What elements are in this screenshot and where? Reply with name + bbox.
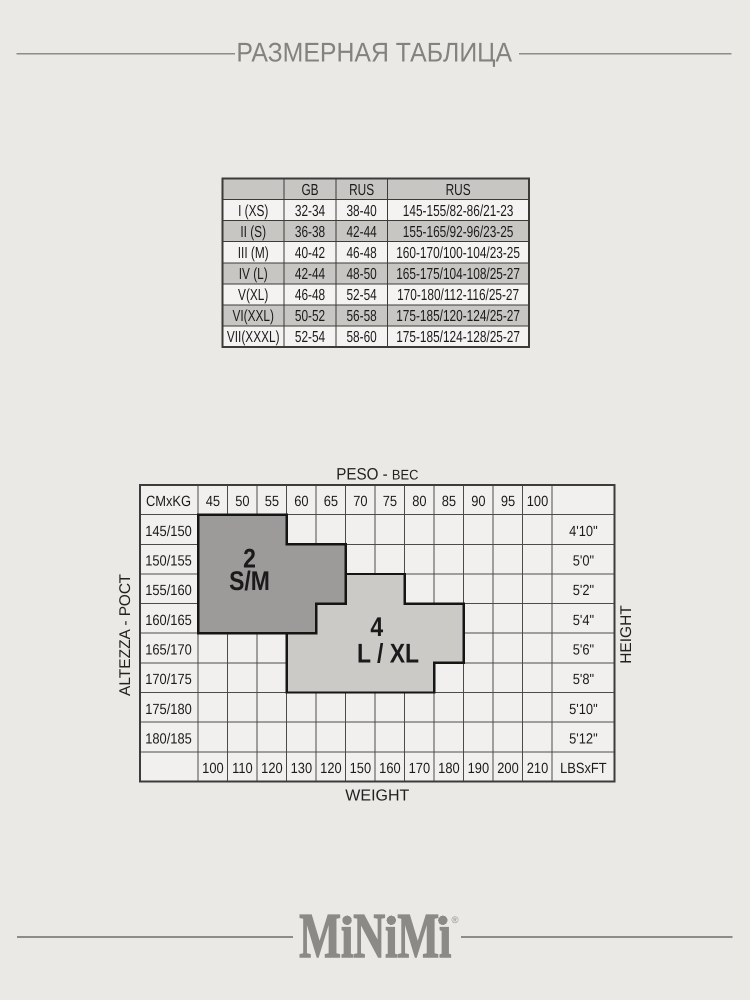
- svg-text:70: 70: [353, 494, 367, 510]
- svg-text:5'4": 5'4": [573, 613, 594, 629]
- svg-text:CMxKG: CMxKG: [146, 494, 191, 510]
- svg-text:120: 120: [320, 761, 341, 777]
- svg-text:RUS: RUS: [446, 182, 471, 199]
- svg-text:LBSxFT: LBSxFT: [560, 761, 607, 777]
- svg-text:VII(XXXL): VII(XXXL): [227, 329, 280, 346]
- svg-text:5'12": 5'12": [569, 731, 598, 747]
- svg-text:L / XL: L / XL: [357, 639, 419, 669]
- svg-text:56-58: 56-58: [346, 308, 376, 325]
- svg-text:170/175: 170/175: [145, 672, 192, 688]
- svg-text:5'8": 5'8": [573, 672, 594, 688]
- svg-text:55: 55: [265, 494, 279, 510]
- svg-text:165-175/104-108/25-27: 165-175/104-108/25-27: [396, 266, 520, 283]
- svg-text:160/165: 160/165: [145, 613, 192, 629]
- svg-text:170: 170: [409, 761, 430, 777]
- svg-text:80: 80: [412, 494, 426, 510]
- svg-text:65: 65: [324, 494, 338, 510]
- svg-text:5'6": 5'6": [573, 642, 594, 658]
- svg-text:120: 120: [261, 761, 282, 777]
- svg-text:III (M): III (M): [238, 245, 269, 262]
- svg-text:GB: GB: [301, 182, 318, 199]
- svg-text:RUS: RUS: [349, 182, 374, 199]
- svg-text:II (S): II (S): [240, 224, 266, 241]
- svg-text:45: 45: [206, 494, 220, 510]
- svg-text:145/150: 145/150: [145, 524, 192, 540]
- svg-text:145-155/82-86/21-23: 145-155/82-86/21-23: [403, 203, 514, 220]
- svg-text:90: 90: [471, 494, 485, 510]
- svg-text:58-60: 58-60: [346, 329, 376, 346]
- svg-text:175/180: 175/180: [145, 702, 192, 718]
- svg-text:4'10": 4'10": [569, 524, 598, 540]
- svg-text:160: 160: [379, 761, 400, 777]
- svg-text:170-180/112-116/25-27: 170-180/112-116/25-27: [397, 287, 519, 304]
- svg-text:60: 60: [294, 494, 308, 510]
- svg-text:ALTEZZA - РОСТ: ALTEZZA - РОСТ: [117, 573, 134, 696]
- svg-text:HEIGHT: HEIGHT: [618, 605, 635, 664]
- svg-text:180: 180: [438, 761, 459, 777]
- svg-text:VI(XXL): VI(XXL): [232, 308, 273, 325]
- svg-text:175-185/124-128/25-27: 175-185/124-128/25-27: [396, 329, 520, 346]
- svg-text:38-40: 38-40: [346, 203, 376, 220]
- svg-text:155/160: 155/160: [145, 583, 192, 599]
- svg-text:190: 190: [468, 761, 489, 777]
- svg-text:I (XS): I (XS): [238, 203, 268, 220]
- svg-text:110: 110: [232, 761, 253, 777]
- svg-text:36-38: 36-38: [295, 224, 325, 241]
- svg-text:165/170: 165/170: [145, 642, 192, 658]
- svg-text:46-48: 46-48: [346, 245, 376, 262]
- svg-text:210: 210: [527, 761, 548, 777]
- svg-text:42-44: 42-44: [346, 224, 376, 241]
- svg-text:50: 50: [235, 494, 249, 510]
- svg-text:180/185: 180/185: [145, 731, 192, 747]
- svg-text:5'10": 5'10": [569, 702, 598, 718]
- svg-text:85: 85: [442, 494, 456, 510]
- svg-text:150/155: 150/155: [145, 554, 192, 570]
- svg-text:130: 130: [291, 761, 312, 777]
- svg-text:100: 100: [527, 494, 548, 510]
- svg-text:175-185/120-124/25-27: 175-185/120-124/25-27: [396, 308, 520, 325]
- svg-text:MıNıMı: MıNıMı: [299, 900, 451, 971]
- svg-text:IV (L): IV (L): [239, 266, 268, 283]
- svg-text:46-48: 46-48: [295, 287, 325, 304]
- svg-text:95: 95: [501, 494, 515, 510]
- svg-text:5'0": 5'0": [573, 554, 594, 570]
- svg-text:200: 200: [497, 761, 518, 777]
- svg-text:РАЗМЕРНАЯ ТАБЛИЦА: РАЗМЕРНАЯ ТАБЛИЦА: [236, 38, 512, 68]
- svg-text:50-52: 50-52: [295, 308, 325, 325]
- svg-text:42-44: 42-44: [295, 266, 325, 283]
- svg-text:155-165/92-96/23-25: 155-165/92-96/23-25: [403, 224, 514, 241]
- svg-text:75: 75: [383, 494, 397, 510]
- svg-text:PESO - ВЕС: PESO - ВЕС: [336, 465, 418, 483]
- svg-text:V(XL): V(XL): [238, 287, 268, 304]
- svg-text:S/M: S/M: [229, 566, 270, 596]
- svg-text:52-54: 52-54: [346, 287, 376, 304]
- svg-text:32-34: 32-34: [295, 203, 325, 220]
- svg-text:150: 150: [350, 761, 371, 777]
- svg-text:5'2": 5'2": [573, 583, 594, 599]
- svg-text:48-50: 48-50: [346, 266, 376, 283]
- svg-text:52-54: 52-54: [295, 329, 325, 346]
- svg-text:160-170/100-104/23-25: 160-170/100-104/23-25: [396, 245, 520, 262]
- svg-text:40-42: 40-42: [295, 245, 325, 262]
- svg-text:WEIGHT: WEIGHT: [345, 787, 409, 804]
- svg-text:®: ®: [452, 915, 459, 926]
- svg-text:100: 100: [202, 761, 223, 777]
